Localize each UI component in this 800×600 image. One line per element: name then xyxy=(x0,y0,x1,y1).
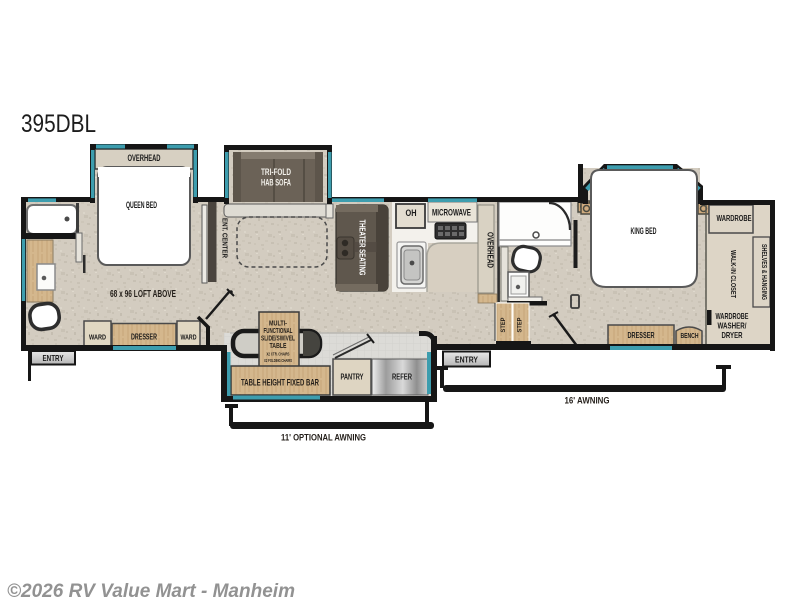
svg-text:WASHER/: WASHER/ xyxy=(718,321,747,331)
svg-text:DRYER: DRYER xyxy=(722,330,743,340)
svg-text:ENTRY: ENTRY xyxy=(455,355,478,365)
svg-text:WALK-IN CLOSET: WALK-IN CLOSET xyxy=(729,250,738,298)
svg-text:X2 FOLDING CHAIRS: X2 FOLDING CHAIRS xyxy=(264,358,292,364)
svg-text:TRI-FOLD: TRI-FOLD xyxy=(261,167,291,178)
svg-text:WARD: WARD xyxy=(181,333,197,342)
svg-text:HAB SOFA: HAB SOFA xyxy=(261,178,291,189)
svg-text:WARD: WARD xyxy=(89,333,106,342)
svg-text:REFER: REFER xyxy=(392,373,412,382)
svg-text:395DBL: 395DBL xyxy=(21,110,96,138)
svg-text:DRESSER: DRESSER xyxy=(628,331,655,340)
svg-text:BENCH: BENCH xyxy=(681,331,699,340)
svg-text:STEP: STEP xyxy=(517,317,524,333)
svg-text:THEATER SEATING: THEATER SEATING xyxy=(358,220,367,276)
svg-text:MULTI-: MULTI- xyxy=(269,321,288,328)
svg-text:TABLE HEIGHT FIXED BAR: TABLE HEIGHT FIXED BAR xyxy=(241,378,319,388)
svg-text:X2 CTR. CHAIRS: X2 CTR. CHAIRS xyxy=(267,352,290,358)
svg-text:©2026 RV Value Mart - Manheim: ©2026 RV Value Mart - Manheim xyxy=(7,581,295,600)
svg-text:OVERHEAD: OVERHEAD xyxy=(486,232,496,268)
svg-text:WARDROBE: WARDROBE xyxy=(717,214,752,223)
svg-text:OVERHEAD: OVERHEAD xyxy=(128,153,161,164)
svg-text:PANTRY: PANTRY xyxy=(341,373,364,382)
svg-text:TABLE: TABLE xyxy=(270,343,287,350)
svg-text:68 x 96 LOFT ABOVE: 68 x 96 LOFT ABOVE xyxy=(110,288,176,300)
svg-text:SLIDE/SWIVEL: SLIDE/SWIVEL xyxy=(261,336,295,343)
svg-text:MICROWAVE: MICROWAVE xyxy=(432,208,471,218)
svg-text:FUNCTIONAL: FUNCTIONAL xyxy=(264,328,293,335)
svg-text:WARDROBE: WARDROBE xyxy=(716,311,749,321)
svg-text:ENT. CENTER: ENT. CENTER xyxy=(221,218,230,258)
svg-text:DRESSER: DRESSER xyxy=(131,333,157,342)
svg-text:16' AWNING: 16' AWNING xyxy=(565,396,610,407)
svg-text:KING BED: KING BED xyxy=(631,226,657,237)
svg-text:11' OPTIONAL AWNING: 11' OPTIONAL AWNING xyxy=(281,433,366,444)
svg-text:OH: OH xyxy=(406,208,417,218)
svg-text:QUEEN BED: QUEEN BED xyxy=(126,200,157,211)
svg-text:ENTRY: ENTRY xyxy=(43,353,64,363)
svg-text:SHELVES & HANGING: SHELVES & HANGING xyxy=(760,244,767,300)
svg-text:STEP: STEP xyxy=(500,317,507,333)
